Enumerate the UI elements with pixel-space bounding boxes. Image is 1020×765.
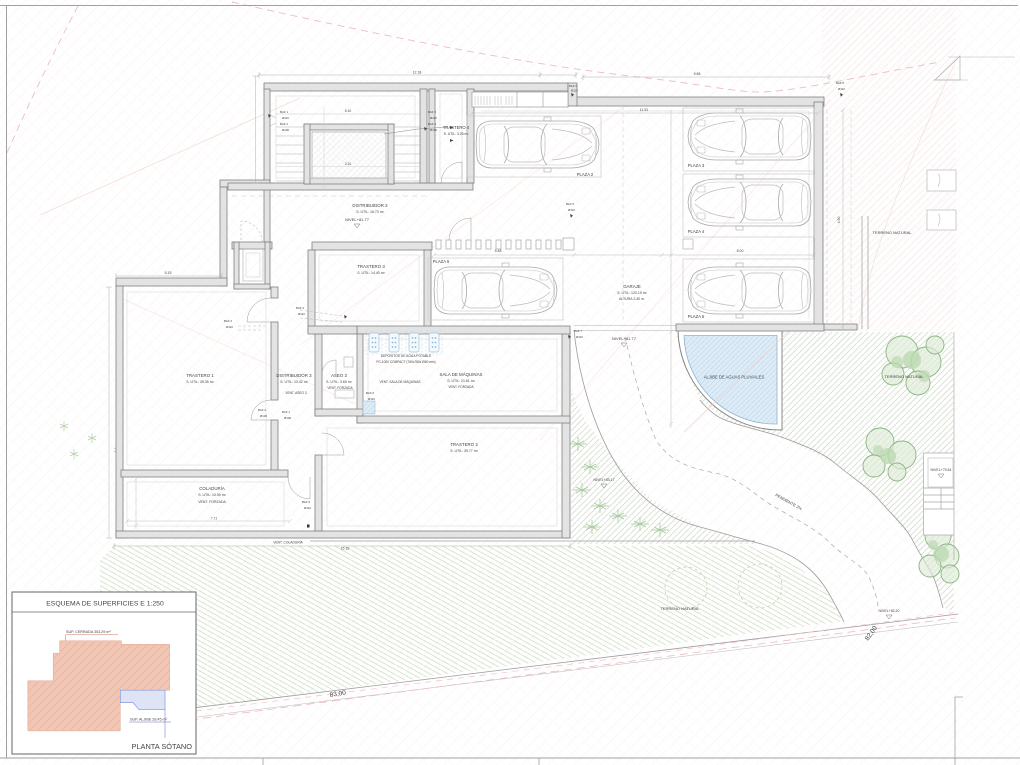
svg-text:5.10: 5.10	[345, 109, 352, 113]
svg-text:NIVEL+81.77: NIVEL+81.77	[345, 217, 370, 222]
svg-text:Ø100: Ø100	[284, 416, 291, 420]
svg-text:BAF 4: BAF 4	[296, 306, 304, 310]
svg-text:Ø110: Ø110	[304, 506, 311, 510]
svg-text:S. UTIL: 3.25 m²: S. UTIL: 3.25 m²	[444, 132, 470, 136]
svg-text:S. UTIL: 35.35 m²: S. UTIL: 35.35 m²	[186, 380, 214, 384]
svg-text:Ø110: Ø110	[568, 208, 575, 212]
svg-text:7.71: 7.71	[211, 517, 218, 521]
svg-text:VENT. FORZADA: VENT. FORZADA	[327, 386, 353, 390]
svg-text:VENT. FORZADA: VENT. FORZADA	[448, 385, 474, 389]
svg-text:VENT. ASEO 3: VENT. ASEO 3	[285, 391, 306, 395]
svg-text:BAF 2: BAF 2	[258, 408, 266, 412]
svg-text:Ø110: Ø110	[368, 397, 375, 401]
svg-text:TRASTERO 2: TRASTERO 2	[450, 442, 478, 447]
svg-text:PLAZA 6: PLAZA 6	[433, 259, 450, 264]
svg-text:PC-1000 COMPACT (780x780x1960: PC-1000 COMPACT (780x780x1960 mm)	[376, 360, 435, 364]
svg-text:NIVEL+79.54: NIVEL+79.54	[931, 468, 952, 472]
svg-text:BAF 6: BAF 6	[569, 84, 577, 88]
svg-text:5.15: 5.15	[165, 271, 172, 275]
svg-text:TRASTERO 3: TRASTERO 3	[357, 264, 385, 269]
svg-text:BAF 4: BAF 4	[428, 122, 436, 126]
svg-text:Ø100: Ø100	[430, 128, 437, 132]
svg-text:ALJIBE DE AGUAS PLUVIALES: ALJIBE DE AGUAS PLUVIALES	[704, 375, 765, 380]
svg-text:NIVEL+83.17: NIVEL+83.17	[594, 478, 615, 482]
svg-text:12.18: 12.18	[413, 71, 422, 75]
svg-text:S. UTIL: 13.42 m²: S. UTIL: 13.42 m²	[280, 380, 308, 384]
svg-text:TERRENO NATURAL: TERRENO NATURAL	[660, 606, 700, 611]
svg-text:Ø100: Ø100	[260, 414, 267, 418]
svg-text:TERRENO NATURAL: TERRENO NATURAL	[872, 230, 912, 235]
svg-text:11.91: 11.91	[640, 108, 649, 112]
svg-text:PLAZA 5: PLAZA 5	[688, 314, 705, 319]
svg-text:ASEO 3: ASEO 3	[331, 373, 347, 378]
svg-text:S. UTIL: 3.60 m²: S. UTIL: 3.60 m²	[326, 380, 353, 384]
svg-text:BAF 2: BAF 2	[280, 122, 288, 126]
svg-text:S. UTIL: 14.40 m²: S. UTIL: 14.40 m²	[357, 271, 385, 275]
svg-text:3.10: 3.10	[345, 162, 352, 166]
svg-text:Ø100: Ø100	[282, 128, 289, 132]
svg-text:DISTRIBUIDOR 2: DISTRIBUIDOR 2	[352, 203, 388, 208]
svg-text:S. UTIL: 21.61 m²: S. UTIL: 21.61 m²	[447, 379, 475, 383]
svg-text:PLANTA SÓTANO: PLANTA SÓTANO	[131, 742, 192, 751]
svg-text:Ø110: Ø110	[571, 89, 578, 93]
svg-text:15.19: 15.19	[341, 547, 350, 551]
svg-text:Ø110: Ø110	[838, 87, 845, 91]
svg-text:TRASTERO 4: TRASTERO 4	[443, 125, 470, 130]
svg-text:VENT. COLADURÍA: VENT. COLADURÍA	[273, 541, 303, 545]
svg-text:PLAZA 4: PLAZA 4	[688, 229, 705, 234]
svg-text:TRASTERO 1: TRASTERO 1	[186, 373, 214, 378]
svg-text:PLAZA 2: PLAZA 2	[577, 172, 594, 177]
svg-text:BAF 3: BAF 3	[428, 110, 436, 114]
svg-text:VENT. SALA DE MÁQUINAS: VENT. SALA DE MÁQUINAS	[379, 380, 420, 384]
svg-text:ESQUEMA DE SUPERFICIES E 1:25: ESQUEMA DE SUPERFICIES E 1:250	[46, 601, 164, 608]
svg-text:GARAJE: GARAJE	[623, 284, 641, 289]
svg-text:BAF 7: BAF 7	[574, 329, 582, 333]
svg-text:DISTRIBUIDOR 3: DISTRIBUIDOR 3	[276, 373, 312, 378]
svg-text:SALA DE MÁQUINAS: SALA DE MÁQUINAS	[440, 372, 483, 377]
svg-text:SUP. ALJIBE 28.45 m²: SUP. ALJIBE 28.45 m²	[130, 718, 168, 722]
svg-text:BAF 1: BAF 1	[280, 110, 288, 114]
svg-text:NIVEL+82.20: NIVEL+82.20	[879, 609, 900, 613]
svg-text:BAF 3: BAF 3	[224, 319, 232, 323]
svg-text:S. UTIL: 120.19 m²: S. UTIL: 120.19 m²	[617, 291, 647, 295]
svg-text:BAF 5: BAF 5	[566, 202, 574, 206]
svg-text:Ø110: Ø110	[298, 312, 305, 316]
svg-text:5.00: 5.00	[737, 249, 744, 253]
svg-text:BAF 6: BAF 6	[366, 391, 374, 395]
svg-text:S. UTIL: 16.73 m²: S. UTIL: 16.73 m²	[356, 210, 384, 214]
svg-text:TERRENO NATURAL: TERRENO NATURAL	[884, 374, 924, 379]
svg-text:Ø110: Ø110	[226, 325, 233, 329]
svg-text:Ø110: Ø110	[282, 116, 289, 120]
svg-text:BAF 9: BAF 9	[302, 500, 310, 504]
svg-text:ALTURA 2.40 m.: ALTURA 2.40 m.	[619, 297, 645, 301]
svg-text:VENT. FORZADA: VENT. FORZADA	[198, 500, 226, 504]
svg-text:9.68: 9.68	[694, 72, 701, 76]
svg-text:5.48: 5.48	[495, 249, 502, 253]
svg-text:Ø110: Ø110	[430, 116, 437, 120]
svg-text:COLADURÍA: COLADURÍA	[199, 486, 225, 491]
svg-text:NIVEL+81.77: NIVEL+81.77	[612, 336, 637, 341]
svg-text:SUP. CERRADA 303.29 m²: SUP. CERRADA 303.29 m²	[66, 630, 111, 634]
svg-text:BAF 8: BAF 8	[836, 81, 844, 85]
svg-text:BAF 1: BAF 1	[282, 410, 290, 414]
svg-text:Ø110: Ø110	[576, 335, 583, 339]
svg-text:PLAZA 3: PLAZA 3	[688, 163, 705, 168]
svg-text:4.50: 4.50	[837, 217, 841, 224]
svg-text:S. UTIL: 39.77 m²: S. UTIL: 39.77 m²	[450, 449, 478, 453]
svg-text:DEPOSITOS DE AGUA POTABLE: DEPOSITOS DE AGUA POTABLE	[381, 354, 432, 358]
svg-text:S. UTIL: 10.90 m²: S. UTIL: 10.90 m²	[198, 493, 226, 497]
